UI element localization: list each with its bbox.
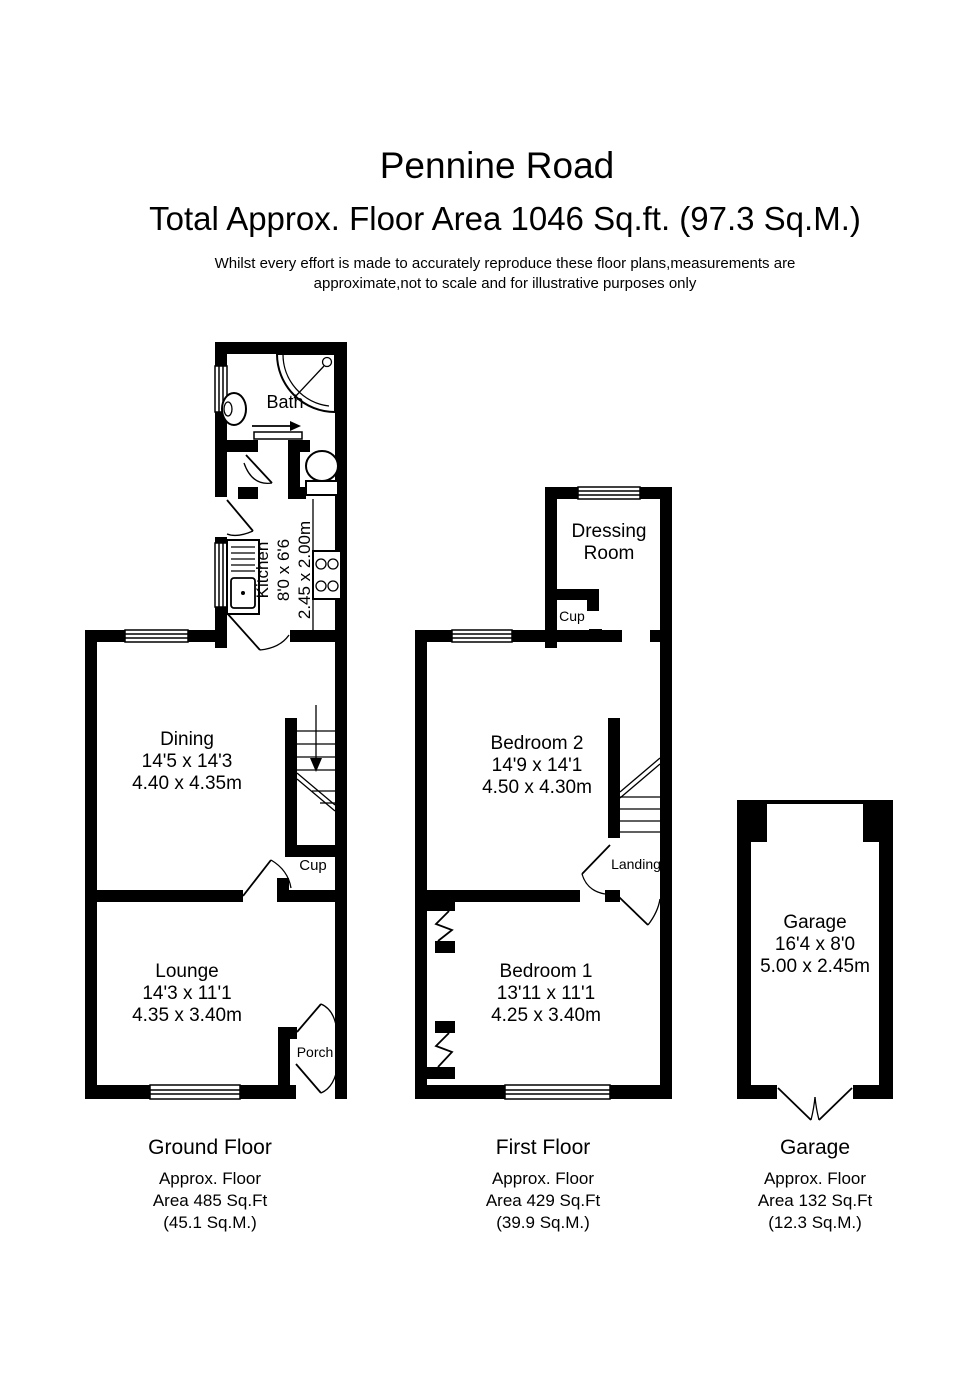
ground-floor-area-line1: Approx. Floor	[159, 1169, 261, 1188]
lobby-door-arc	[244, 455, 272, 483]
bath-label: Bath	[266, 392, 303, 412]
basin-icon	[222, 393, 246, 425]
disclaimer-line-1: Whilst every effort is made to accuratel…	[215, 255, 796, 272]
first-floor-plan: Dressing Room Cup Bedroom 2 14'9 x 14'1 …	[415, 487, 672, 1099]
porch-inner-door-arc	[297, 1004, 337, 1032]
disclaimer-line-2: approximate,not to scale and for illustr…	[314, 275, 697, 292]
ground-floor-caption-title: Ground Floor	[148, 1136, 272, 1159]
dressing-room-label-line2: Room	[584, 543, 635, 564]
bedroom2-door-arc	[582, 845, 610, 894]
first-floor-area-line2: Area 429 Sq.Ft	[486, 1191, 601, 1210]
lounge-dims-ft: 14'3 x 11'1	[142, 983, 231, 1004]
bedroom2-dims-ft: 14'9 x 14'1	[492, 755, 583, 776]
lounge-label: Lounge	[155, 961, 218, 982]
bath-sliding-door	[252, 421, 302, 439]
kitchen-dims-m: 2.45 x 2.00m	[295, 521, 314, 619]
ground-floor-plan: Bath Kitchen 8'0 x 6'6 2.45 x 2.00m Dini…	[85, 342, 347, 1099]
garage-area-line3: (12.3 Sq.M.)	[768, 1213, 862, 1232]
stairs-up	[620, 758, 660, 832]
lounge-window	[150, 1085, 240, 1099]
lounge-dims-m: 4.35 x 3.40m	[132, 1005, 242, 1026]
garage-caption-title: Garage	[780, 1136, 850, 1159]
toilet-icon	[306, 451, 338, 495]
first-floor-area-line3: (39.9 Sq.M.)	[496, 1213, 590, 1232]
ground-cup-label: Cup	[299, 857, 327, 874]
bedroom2-dims-m: 4.50 x 4.30m	[482, 777, 592, 798]
stairs-down	[297, 705, 335, 811]
bedroom1-dims-ft: 13'11 x 11'1	[497, 983, 595, 1004]
floor-plan-document: Pennine Road Total Approx. Floor Area 10…	[0, 0, 980, 1386]
total-area-subtitle: Total Approx. Floor Area 1046 Sq.ft. (97…	[149, 200, 861, 237]
bedroom2-window	[452, 630, 512, 642]
bedroom2-label: Bedroom 2	[491, 733, 584, 754]
wardrobe-bifold-top	[436, 911, 452, 941]
header: Pennine Road Total Approx. Floor Area 10…	[149, 145, 861, 292]
bedroom1-dims-m: 4.25 x 3.40m	[491, 1005, 601, 1026]
garage-label: Garage	[783, 912, 846, 933]
first-floor-caption-title: First Floor	[496, 1136, 591, 1159]
dining-label: Dining	[160, 729, 214, 750]
garage-dims-m: 5.00 x 2.45m	[760, 956, 870, 977]
garage-caption: Garage Approx. Floor Area 132 Sq.Ft (12.…	[758, 1136, 873, 1232]
dining-dims-m: 4.40 x 4.35m	[132, 773, 242, 794]
hob-icon	[313, 551, 341, 599]
kitchen-dining-door-arc	[226, 612, 289, 650]
dining-dims-ft: 14'5 x 14'3	[142, 751, 233, 772]
kitchen-back-door-arc	[227, 500, 253, 535]
bedroom1-door-arc	[619, 897, 660, 925]
ground-floor-area-line3: (45.1 Sq.M.)	[163, 1213, 257, 1232]
landing-label: Landing	[611, 856, 661, 872]
porch-label: Porch	[297, 1044, 334, 1060]
garage-area-line2: Area 132 Sq.Ft	[758, 1191, 873, 1210]
dining-window	[125, 630, 188, 642]
garage-plan: Garage 16'4 x 8'0 5.00 x 2.45m	[737, 800, 893, 1120]
dressing-room-label-line1: Dressing	[572, 521, 647, 542]
garage-area-line1: Approx. Floor	[764, 1169, 866, 1188]
first-cup-label: Cup	[559, 608, 585, 624]
kitchen-window	[215, 543, 227, 607]
first-floor-caption: First Floor Approx. Floor Area 429 Sq.Ft…	[486, 1136, 601, 1232]
garage-dims-ft: 16'4 x 8'0	[775, 934, 855, 955]
bedroom1-window	[505, 1085, 610, 1099]
page-title: Pennine Road	[380, 145, 615, 186]
wardrobe-bifold-bottom	[436, 1033, 452, 1067]
ground-floor-area-line2: Area 485 Sq.Ft	[153, 1191, 268, 1210]
bedroom1-label: Bedroom 1	[500, 961, 593, 982]
ground-floor-caption: Ground Floor Approx. Floor Area 485 Sq.F…	[148, 1136, 272, 1232]
kitchen-dims-ft: 8'0 x 6'6	[274, 539, 293, 601]
first-floor-area-line1: Approx. Floor	[492, 1169, 594, 1188]
porch-entrance-door-arc	[296, 1064, 338, 1093]
garage-doors	[778, 1088, 852, 1120]
dressing-room-window	[578, 487, 640, 499]
kitchen-label: Kitchen	[253, 542, 272, 599]
